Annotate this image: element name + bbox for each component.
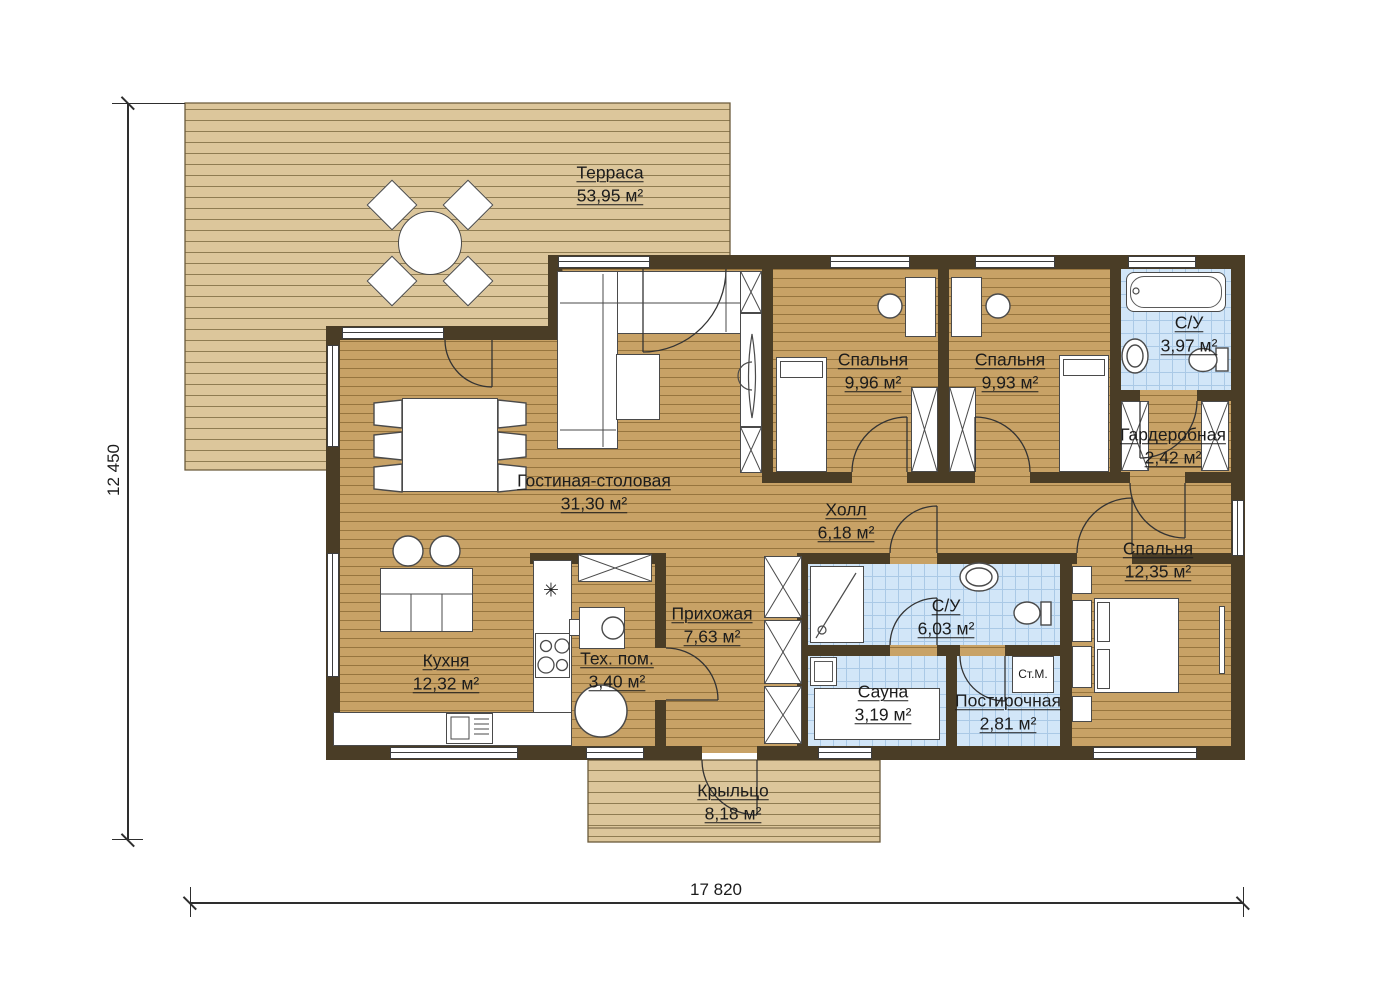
room-label-bathroom2: С/У6,03 м² [918, 594, 975, 640]
window [975, 256, 1055, 268]
pillow [1063, 359, 1105, 376]
sauna-stove [810, 657, 837, 686]
coffee-table [616, 354, 660, 420]
room-label-bedroom2: Спальня9,93 м² [975, 348, 1045, 394]
water-heater-unit [579, 607, 625, 649]
sauna-stove [814, 661, 833, 682]
room-label-tech: Тех. пом.3,40 м² [580, 647, 654, 693]
oven [446, 713, 493, 744]
pillow [1097, 649, 1110, 689]
dimension-label-vertical: 12 450 [104, 444, 124, 496]
room-label-wardrobe: Гардеробная2,42 м² [1120, 423, 1226, 469]
room-label-porch: Крыльцо8,18 м² [697, 779, 768, 825]
room-label-laundry: Постирочная2,81 м² [955, 689, 1061, 735]
closet-symbol [740, 427, 762, 473]
room-label-kitchen: Кухня12,32 м² [413, 649, 480, 695]
closet-symbol [911, 387, 938, 472]
closet-symbol [949, 387, 976, 472]
window [327, 345, 339, 447]
sofa [557, 271, 618, 449]
room-label-entry: Прихожая7,63 м² [671, 602, 752, 648]
room-label-bedroom3: Спальня12,35 м² [1123, 537, 1193, 583]
window [1093, 747, 1197, 759]
room-label-hall: Холл6,18 м² [818, 498, 875, 544]
window [586, 747, 644, 759]
closet-symbol [764, 686, 802, 744]
window [1128, 256, 1196, 268]
dining-table [402, 398, 498, 492]
window [390, 747, 518, 759]
room-label-bedroom1: Спальня9,96 м² [838, 348, 908, 394]
closet-symbol [764, 620, 802, 684]
bathtub [1126, 272, 1226, 312]
wall [1121, 390, 1140, 401]
closet-symbol [578, 554, 652, 582]
window [558, 256, 650, 268]
shower-tray [810, 566, 864, 643]
window [1232, 500, 1244, 556]
wall [1197, 390, 1231, 401]
wall [762, 269, 773, 483]
tv-panel [1219, 606, 1225, 674]
window [327, 553, 339, 677]
dimension-line-vertical [127, 103, 129, 840]
room-label-terrace: Терраса53,95 м² [576, 161, 643, 207]
pillow [780, 361, 823, 378]
wall [1030, 472, 1130, 483]
wall [937, 553, 1077, 564]
tv-cabinet [740, 313, 762, 427]
dimension-extension [112, 103, 185, 104]
wall [907, 472, 975, 483]
wall [1005, 645, 1060, 656]
dresser [1072, 566, 1092, 594]
nightstand [1072, 600, 1092, 642]
closet-symbol [764, 556, 802, 618]
nightstand [1072, 696, 1092, 722]
wall [1060, 553, 1072, 746]
washing-machine-label: Ст.М. [1018, 667, 1048, 681]
room-label-bathroom1: С/У3,97 м² [1161, 311, 1218, 357]
desk [905, 277, 936, 337]
window [342, 327, 444, 339]
extractor-icon: ✳ [543, 580, 559, 603]
wall [762, 472, 852, 483]
closet-symbol [740, 271, 762, 313]
dimension-label-horizontal: 17 820 [690, 880, 742, 900]
wall [797, 553, 890, 564]
nightstand [1072, 646, 1092, 688]
wall [655, 700, 666, 746]
wall [1185, 472, 1231, 483]
kitchen-table [380, 568, 473, 632]
window [818, 747, 872, 759]
floor-plan: ✳ [0, 0, 1400, 990]
pillow [1097, 602, 1110, 642]
wall [938, 269, 949, 483]
dimension-line-horizontal [190, 902, 1243, 904]
desk [951, 277, 982, 337]
window [830, 256, 910, 268]
water-heater-unit [569, 619, 580, 636]
wall [655, 553, 666, 648]
stove [535, 633, 570, 678]
room-label-living: Гостиная-столовая31,30 м² [517, 469, 671, 515]
wall [797, 645, 890, 656]
round-table [398, 211, 462, 275]
room-label-sauna: Сауна3,19 м² [855, 680, 912, 726]
bathtub [1130, 276, 1222, 308]
wall [937, 645, 960, 656]
